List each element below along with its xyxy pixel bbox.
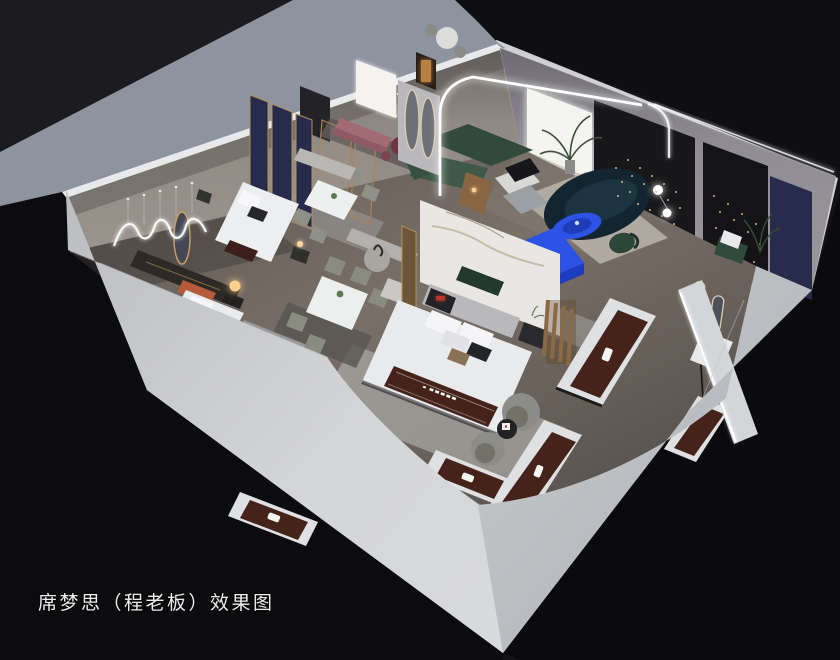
render-canvas: 席梦思（程老板）效果图 xyxy=(0,0,840,660)
render-title: 席梦思（程老板）效果图 xyxy=(38,588,275,615)
alcove-artwork xyxy=(421,60,431,82)
oval-mirror xyxy=(421,98,435,158)
red-display xyxy=(436,296,445,301)
wood-slat-screen xyxy=(544,300,576,365)
isometric-floorplan-render xyxy=(0,0,840,660)
table-plant xyxy=(331,193,337,199)
table-lamp xyxy=(230,281,241,292)
oval-mirror xyxy=(405,90,419,150)
round-stone-table xyxy=(364,246,390,272)
table-lamp xyxy=(297,241,303,247)
plant-pot xyxy=(565,160,575,174)
chair xyxy=(425,24,437,36)
chair xyxy=(454,46,466,58)
small-ottoman xyxy=(381,151,391,161)
console-lamp xyxy=(472,188,477,193)
table-plant xyxy=(337,291,344,298)
table-decor xyxy=(575,221,579,225)
